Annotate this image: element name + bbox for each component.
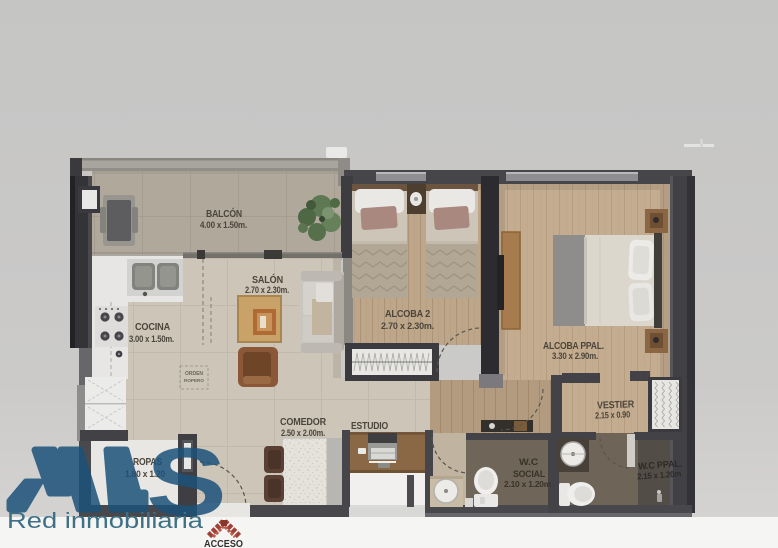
svg-text:3.00 x 1.50m.: 3.00 x 1.50m.: [129, 334, 174, 344]
svg-text:Red inmobiliaria: Red inmobiliaria: [7, 508, 204, 533]
svg-text:3.30 x 2.90m.: 3.30 x 2.90m.: [552, 351, 598, 361]
svg-text:2.15 x 0.90: 2.15 x 0.90: [595, 409, 630, 420]
svg-text:ACCESO: ACCESO: [204, 539, 243, 548]
svg-text:2.70 x 2.30m.: 2.70 x 2.30m.: [381, 321, 434, 331]
svg-text:2.70 x 2.30m.: 2.70 x 2.30m.: [245, 285, 289, 295]
svg-text:W.C: W.C: [519, 457, 538, 468]
svg-text:BALCÓN: BALCÓN: [206, 207, 242, 220]
svg-text:ESTUDIO: ESTUDIO: [351, 420, 388, 432]
svg-text:COCINA: COCINA: [135, 321, 171, 333]
svg-text:ALCOBA 2: ALCOBA 2: [385, 308, 430, 320]
svg-text:2.50 x 2.00m.: 2.50 x 2.00m.: [281, 428, 325, 438]
svg-text:ORDEN: ORDEN: [185, 371, 203, 377]
svg-text:2.10 x 1.20m: 2.10 x 1.20m: [504, 479, 552, 489]
svg-text:4.00 x 1.50m.: 4.00 x 1.50m.: [200, 220, 247, 230]
svg-text:COMEDOR: COMEDOR: [280, 416, 327, 428]
svg-text:ROPERO: ROPERO: [184, 378, 204, 383]
